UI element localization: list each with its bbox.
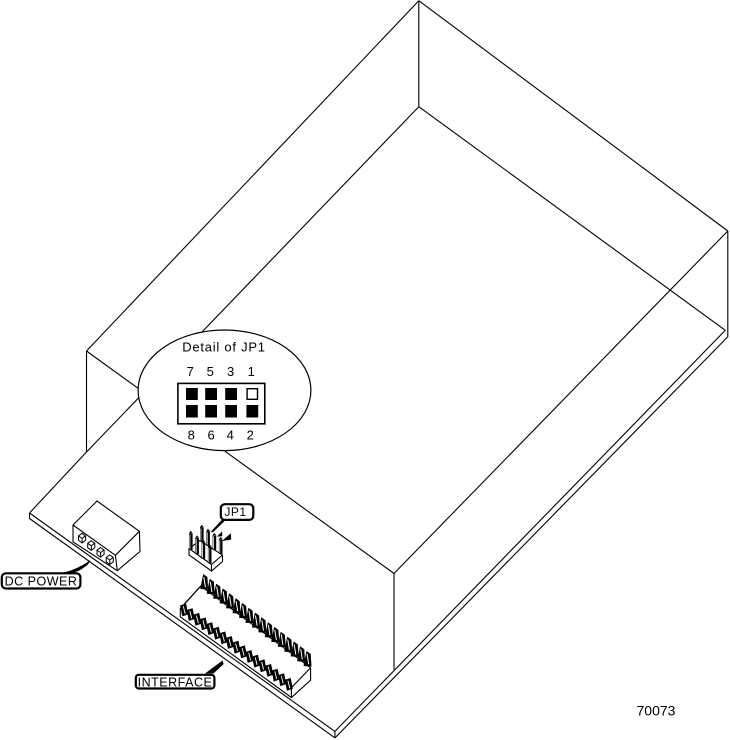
svg-text:2: 2	[247, 428, 254, 443]
svg-text:7: 7	[187, 364, 194, 379]
svg-text:Detail of JP1: Detail of JP1	[182, 340, 265, 355]
svg-text:5: 5	[207, 364, 214, 379]
svg-text:4: 4	[227, 428, 234, 443]
svg-text:8: 8	[188, 428, 195, 443]
svg-text:6: 6	[207, 428, 214, 443]
svg-text:INTERFACE: INTERFACE	[138, 675, 213, 689]
svg-text:DC POWER: DC POWER	[5, 574, 78, 588]
svg-text:70073: 70073	[637, 703, 676, 719]
svg-text:JP1: JP1	[224, 505, 246, 519]
svg-text:1: 1	[248, 364, 255, 379]
svg-text:3: 3	[227, 364, 234, 379]
